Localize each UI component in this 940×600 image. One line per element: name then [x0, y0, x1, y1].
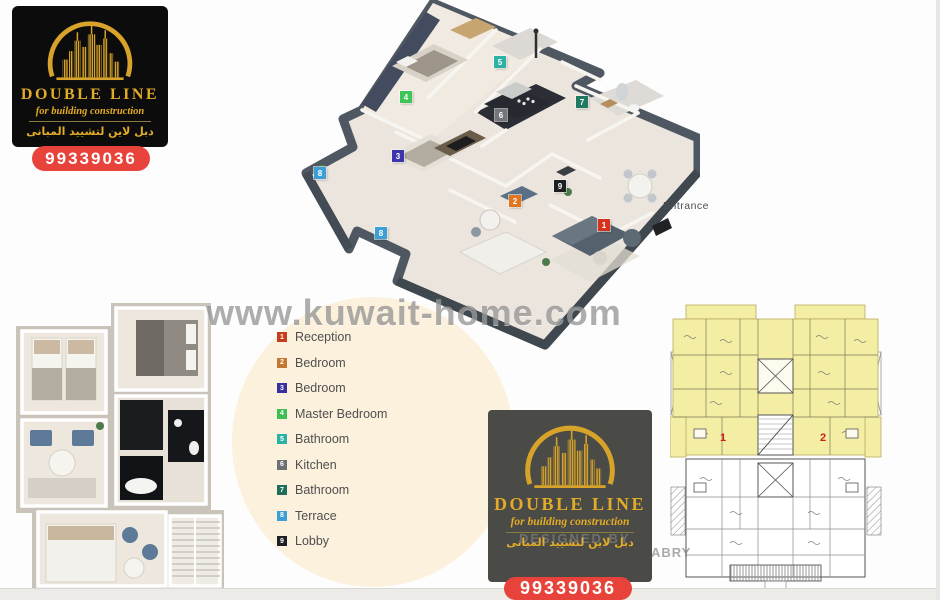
legend-color-chip: 5	[277, 434, 287, 444]
room-marker-6: 6	[495, 109, 507, 121]
bottom-edge-strip	[0, 588, 940, 600]
legend-label: Kitchen	[295, 458, 337, 472]
phone-badge-bottom: 99339036	[504, 577, 632, 600]
topdown-3d-floorplan	[8, 298, 233, 590]
legend-label: Terrace	[295, 509, 337, 523]
room-marker-7: 7	[576, 96, 588, 108]
room-marker-2: 2	[509, 195, 521, 207]
legend-color-chip: 6	[277, 460, 287, 470]
legend-label: Master Bedroom	[295, 407, 387, 421]
room-marker-8: 8	[314, 167, 326, 179]
company-logo-top: DOUBLE LINE for building construction دب…	[12, 6, 168, 147]
legend-label: Bedroom	[295, 356, 346, 370]
legend-label: Bathroom	[295, 432, 349, 446]
buildings-arch-emblem	[503, 415, 637, 493]
legend-color-chip: 4	[277, 409, 287, 419]
legend-color-chip: 7	[277, 485, 287, 495]
legend-color-chip: 3	[277, 383, 287, 393]
unit-number-1: 1	[720, 432, 726, 444]
logo-divider	[29, 121, 151, 122]
legend-item-lobby: 9Lobby	[277, 535, 387, 548]
gray-bed	[136, 320, 198, 376]
legend-item-bedroom: 3Bedroom	[277, 382, 387, 395]
room-marker-4: 4	[400, 91, 412, 103]
legend-item-terrace: 8Terrace	[277, 510, 387, 523]
legend-item-bathroom: 5Bathroom	[277, 433, 387, 446]
designer-name-watermark: ABRY	[651, 545, 691, 560]
legend-item-bedroom: 2Bedroom	[277, 357, 387, 370]
legend-label: Bedroom	[295, 381, 346, 395]
phone-badge-top: 99339036	[32, 146, 150, 171]
unit-number-2: 2	[820, 432, 826, 444]
company-name: DOUBLE LINE	[21, 87, 159, 103]
website-watermark: www.kuwait-home.com	[206, 292, 622, 334]
company-tagline: for building construction	[36, 106, 145, 117]
legend-item-master-bedroom: 4Master Bedroom	[277, 408, 387, 421]
designer-watermark: DESIGNED BY	[519, 531, 631, 546]
legend-item-bathroom: 7Bathroom	[277, 484, 387, 497]
highlighted-floor	[670, 305, 881, 457]
legend-label: Lobby	[295, 534, 329, 548]
room-marker-5: 5	[494, 56, 506, 68]
buildings-arch-emblem	[27, 11, 153, 85]
company-name: DOUBLE LINE	[494, 495, 646, 513]
legend-item-kitchen: 6Kitchen	[277, 459, 387, 472]
company-tagline: for building construction	[511, 516, 630, 528]
lower-floor	[686, 459, 865, 591]
entrance-label: Entrance	[663, 200, 709, 212]
room-marker-9: 9	[554, 180, 566, 192]
legend-color-chip: 9	[277, 536, 287, 546]
flyer-canvas: 1 2	[0, 0, 940, 600]
room-legend: 1Reception2Bedroom3Bedroom4Master Bedroo…	[277, 331, 387, 548]
legend-label: Bathroom	[295, 483, 349, 497]
room-marker-1: 1	[598, 219, 610, 231]
right-edge-strip	[936, 0, 940, 600]
legend-color-chip: 2	[277, 358, 287, 368]
company-name-arabic: دبل لاين لتشييد المبانى	[26, 125, 154, 138]
room-marker-8: 8	[375, 227, 387, 239]
blueprint-2d-floorplan: 1 2	[670, 297, 882, 593]
company-logo-bottom: DOUBLE LINE for building construction دب…	[488, 410, 652, 582]
room-marker-3: 3	[392, 150, 404, 162]
legend-color-chip: 8	[277, 511, 287, 521]
